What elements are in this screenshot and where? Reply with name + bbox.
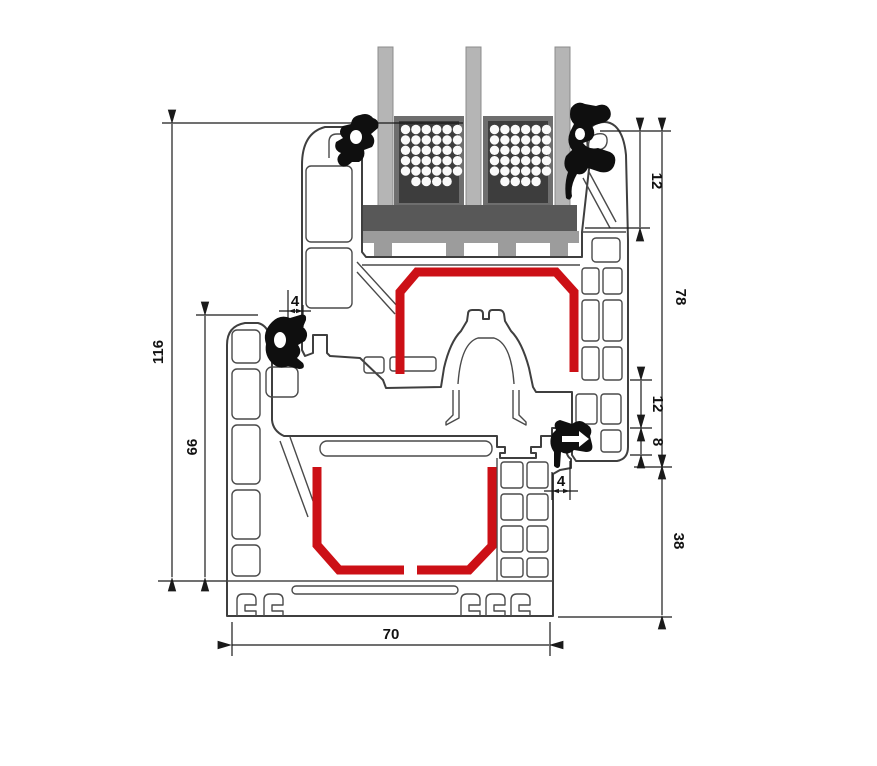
glazing-bridge-legs xyxy=(374,243,568,257)
window-profile-cross-section: 116 66 4 12 78 12 8 4 38 70 xyxy=(0,0,877,766)
dim-label-8: 8 xyxy=(649,438,666,446)
glass-pane-outer xyxy=(378,47,393,230)
frame-gasket-left xyxy=(265,315,307,369)
glazing-spacer-block-right xyxy=(483,116,553,205)
glazing-bridge xyxy=(360,231,579,243)
dim-label-12-top: 12 xyxy=(648,173,665,190)
glazing-spacer-block-left xyxy=(394,116,464,205)
hardware-groove-flange-left xyxy=(446,390,459,425)
dim-label-12-mid: 12 xyxy=(649,396,666,413)
glass-pane-inner xyxy=(555,47,570,230)
setting-block xyxy=(363,205,577,231)
dim-label-4-right: 4 xyxy=(557,473,566,490)
dim-label-116: 116 xyxy=(150,340,167,364)
dim-label-4-top: 4 xyxy=(291,293,300,310)
hardware-groove-flange-right xyxy=(513,390,526,425)
glass-pane-middle xyxy=(466,47,481,230)
glazing-unit xyxy=(360,47,579,257)
window-profile-drawing-page: 116 66 4 12 78 12 8 4 38 70 xyxy=(0,0,877,766)
hardware-groove-cavity xyxy=(458,338,514,384)
gasket-hole xyxy=(575,128,585,140)
dim-label-38: 38 xyxy=(670,533,687,550)
gasket-hole xyxy=(350,130,362,144)
dim-label-78: 78 xyxy=(672,289,689,306)
dim-label-66: 66 xyxy=(184,439,201,456)
dim-label-70: 70 xyxy=(383,626,400,643)
gasket-hole xyxy=(274,332,286,348)
